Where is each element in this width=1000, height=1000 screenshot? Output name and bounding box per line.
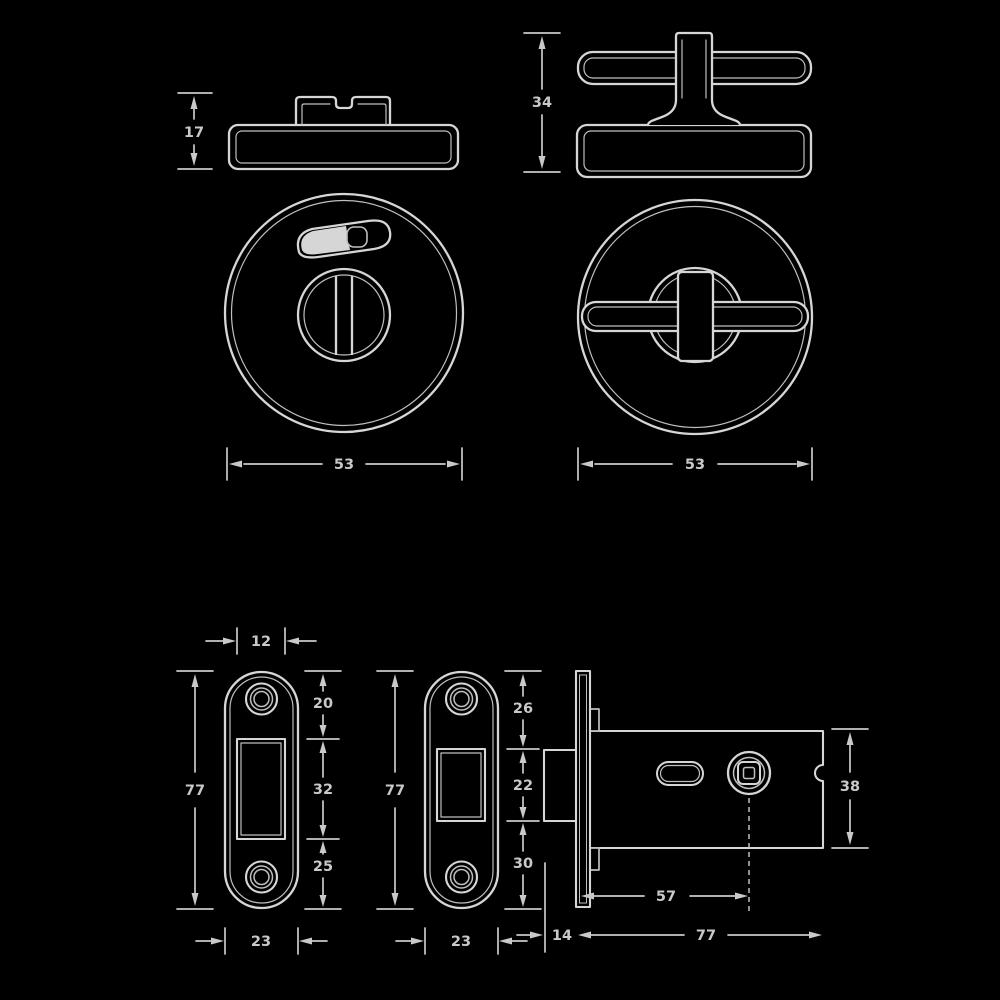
dim-23-forend: 23 [396, 928, 527, 954]
coin-slot [336, 277, 352, 354]
case-oval-slot-inner [661, 766, 700, 782]
dim-stack-forend: 26 22 30 [505, 671, 541, 909]
dim-label-22: 22 [513, 778, 533, 794]
case-body-outline [590, 731, 823, 848]
dim-label-17: 17 [184, 125, 204, 141]
forend-bolt-slot [437, 749, 485, 821]
dim-53-right: 53 [578, 448, 812, 480]
dim-77-strike: 77 [177, 671, 213, 909]
forend-bolt-slot-inner [441, 753, 481, 817]
turn-stem-front [678, 272, 713, 361]
indicator-rose-view: 53 [225, 194, 463, 480]
turn-base-outline [577, 125, 811, 177]
dim-label-77-forend: 77 [385, 783, 405, 799]
indicator-window-slot [347, 227, 367, 247]
turn-rose-view: 53 [578, 200, 812, 480]
profile-base-inner-line [236, 131, 451, 163]
dim-57: 57 [581, 889, 748, 905]
hardware-drawing: 17 34 53 [0, 0, 1000, 1000]
case-top-lug [590, 709, 599, 731]
turn-stem-fill [648, 33, 740, 125]
profile-boss-outline [296, 97, 390, 125]
dim-label-53-left: 53 [334, 457, 354, 473]
release-boss-inner-circle [304, 275, 384, 355]
dim-label-77-case: 77 [696, 928, 716, 944]
dim-label-23-strike: 23 [251, 934, 271, 950]
spindle-square [738, 762, 760, 784]
forend-plate-view: 77 26 22 30 23 [377, 671, 541, 954]
release-boss-outer-circle [298, 269, 390, 361]
dim-label-23-forend: 23 [451, 934, 471, 950]
dim-label-38: 38 [840, 779, 860, 795]
dim-label-12: 12 [251, 634, 271, 650]
indicator-profile-view: 17 [178, 93, 458, 169]
dim-label-25: 25 [313, 859, 333, 875]
strike-plate-view: 12 77 20 32 25 23 [177, 628, 341, 954]
turn-profile-view: 34 [524, 33, 811, 177]
lock-case-view: 38 57 14 77 [517, 671, 868, 952]
strike-bolt-slot-inner [241, 743, 281, 835]
dim-label-57: 57 [656, 889, 676, 905]
dim-14-77: 14 77 [517, 863, 822, 952]
dim-label-20: 20 [313, 696, 333, 712]
forend-screw-hole-top-center [454, 692, 469, 707]
turn-base-inner-line [584, 131, 804, 171]
dim-label-34: 34 [532, 95, 552, 111]
dim-53-left: 53 [227, 448, 462, 480]
technical-drawing-canvas: 17 34 53 [0, 0, 1000, 1000]
dim-label-53-right: 53 [685, 457, 705, 473]
dim-label-30: 30 [513, 856, 533, 872]
dim-77-forend: 77 [377, 671, 413, 909]
spindle-square-inner [744, 768, 755, 779]
deadbolt [544, 750, 577, 821]
dim-38: 38 [832, 729, 868, 848]
strike-bolt-slot [237, 739, 285, 839]
dim-label-14: 14 [552, 928, 572, 944]
faceplate-side [576, 671, 590, 907]
strike-screw-hole-bottom-center [254, 870, 269, 885]
dim-label-77-strike: 77 [185, 783, 205, 799]
strike-screw-hole-top-center [254, 692, 269, 707]
dim-stack-strike: 20 32 25 [305, 671, 341, 909]
dim-34: 34 [524, 33, 560, 172]
dim-12: 12 [206, 628, 316, 654]
dim-23-strike: 23 [196, 928, 327, 954]
spindle-hub-outer [728, 752, 770, 794]
forend-screw-hole-bottom-center [454, 870, 469, 885]
case-bottom-lug [590, 848, 599, 870]
dim-label-26: 26 [513, 701, 533, 717]
dim-label-32: 32 [313, 782, 333, 798]
dim-17: 17 [178, 93, 212, 169]
